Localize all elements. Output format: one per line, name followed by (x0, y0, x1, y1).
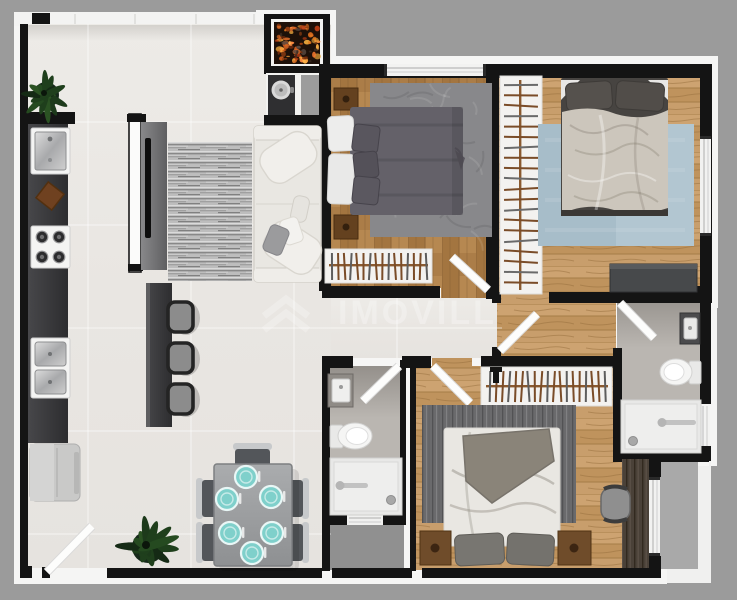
svg-text:IMOVILL: IMOVILL (338, 294, 497, 332)
